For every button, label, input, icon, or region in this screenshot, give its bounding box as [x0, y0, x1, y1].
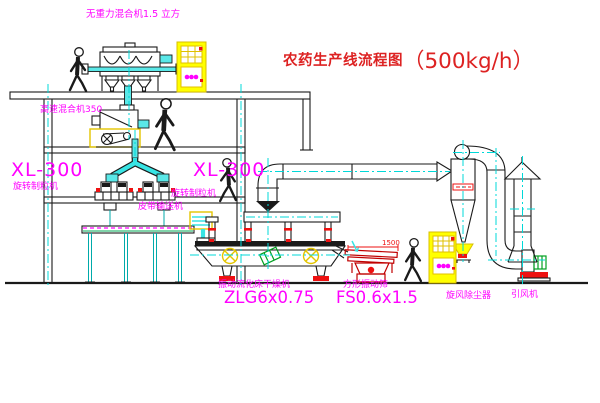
- label-dryer-model: ZLG6x0.75: [224, 290, 314, 307]
- motor-coil-symbol: [437, 264, 451, 269]
- dryer-body: [195, 246, 345, 266]
- diagram-title: 农药生产线流程图（500kg/h）: [283, 44, 534, 75]
- person-ground: [405, 239, 421, 281]
- second-floor-slab: [44, 147, 245, 153]
- label-granulator-mid: 旋转制粒机: [171, 190, 216, 199]
- fluid-bed-dryer: [195, 212, 345, 281]
- belt-conveyor: [82, 212, 212, 282]
- flow-diagram-canvas: 农药生产线流程图（500kg/h） 无重力混合机1.5 立方 高速混合机350 …: [0, 0, 600, 403]
- dryer-feet: [219, 266, 329, 281]
- exhaust-duct: [256, 162, 452, 212]
- label-cyclone: 旋风除尘器: [446, 292, 491, 301]
- person-second-floor: [155, 99, 174, 150]
- control-cabinet-screen: [429, 232, 456, 283]
- label-gravity-mixer: 无重力混合机1.5 立方: [86, 10, 180, 20]
- y-chute: [106, 158, 169, 182]
- label-screen-model: FS0.6x1.5: [336, 290, 418, 307]
- label-fan: 引风机: [511, 291, 538, 300]
- label-xl300-mid: XL-300: [193, 161, 265, 180]
- title-capacity: （500kg/h）: [403, 44, 534, 75]
- label-high-speed-mixer: 高速混合机350: [40, 106, 102, 115]
- label-belt-conveyor: 皮带输送机: [138, 203, 183, 212]
- label-xl300-left: XL-300: [11, 161, 83, 180]
- motor-coil-symbol: [185, 75, 199, 80]
- control-cabinet-top: [177, 42, 206, 92]
- label-granulator-left: 旋转制粒机: [13, 183, 58, 192]
- granulator-left: [95, 182, 133, 200]
- conveyor-legs: [85, 233, 185, 282]
- label-screen-dimension: 1500: [382, 239, 400, 247]
- top-floor-slab: [10, 92, 310, 99]
- title-text: 农药生产线流程图: [283, 49, 403, 70]
- person-top-floor: [70, 48, 86, 91]
- granulator-right: [137, 182, 175, 200]
